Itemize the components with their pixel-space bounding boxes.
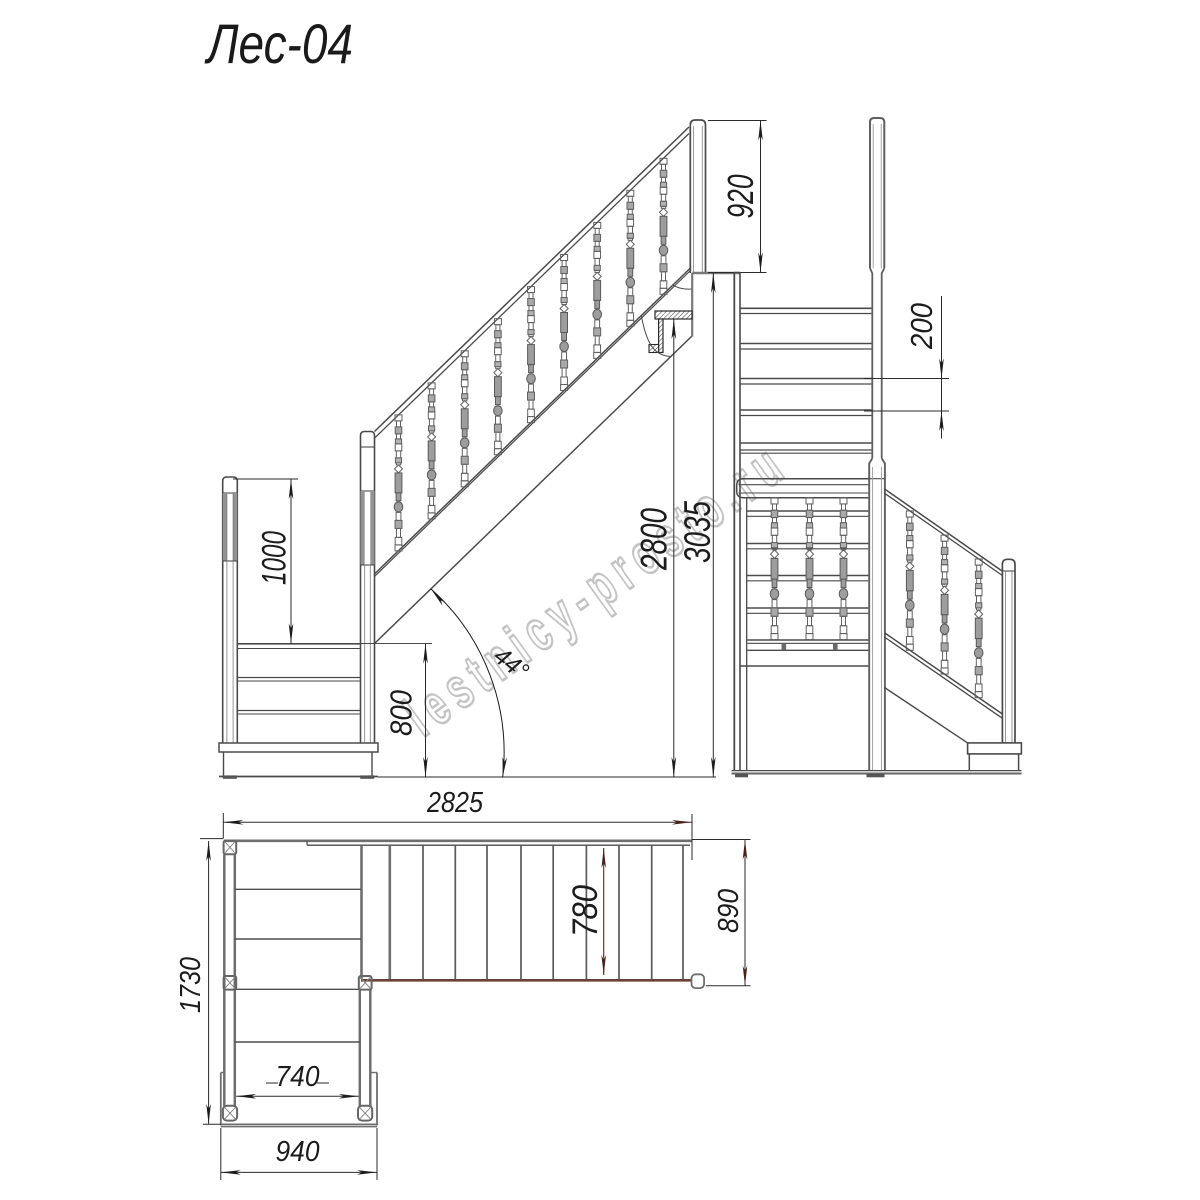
svg-text:2825: 2825: [426, 787, 484, 819]
svg-text:940: 940: [276, 1136, 320, 1168]
svg-text:920: 920: [720, 175, 761, 219]
svg-text:200: 200: [904, 303, 939, 350]
svg-text:780: 780: [566, 885, 605, 937]
svg-text:890: 890: [713, 889, 745, 933]
svg-text:1730: 1730: [175, 957, 207, 1013]
svg-text:1000: 1000: [256, 531, 294, 585]
svg-text:740: 740: [276, 1061, 320, 1093]
svg-text:3035: 3035: [677, 501, 718, 563]
svg-text:2800: 2800: [634, 508, 675, 571]
svg-text:800: 800: [384, 690, 419, 736]
svg-text:Лес-04: Лес-04: [205, 12, 353, 75]
